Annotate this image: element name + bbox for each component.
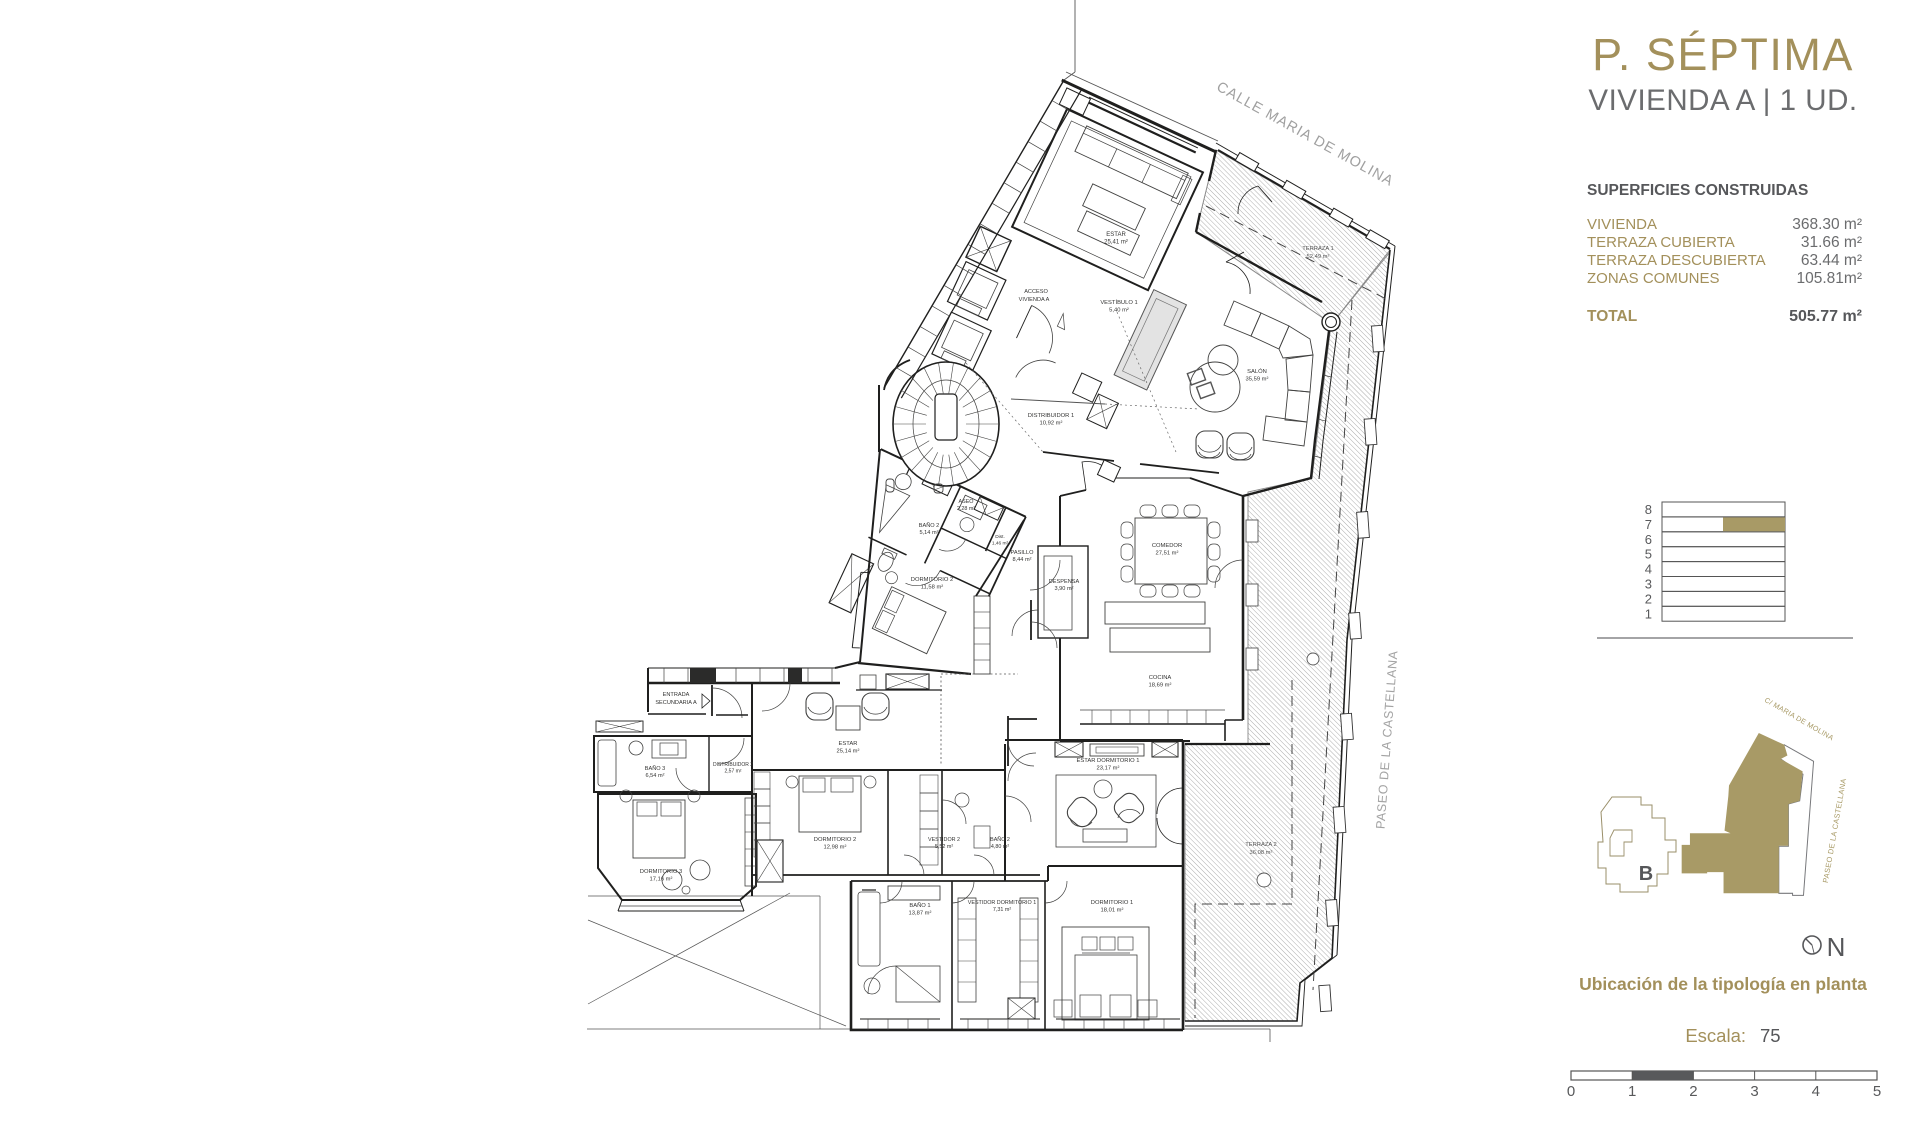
svg-text:Ubicación de la tipología en: Ubicación de la tipología en planta [1579,974,1867,994]
svg-text:36,08 m²: 36,08 m² [1250,850,1273,856]
svg-text:TERRAZA CUBIERTA: TERRAZA CUBIERTA [1587,234,1735,251]
svg-text:75: 75 [1760,1025,1781,1046]
svg-text:VESTÍBULO 1: VESTÍBULO 1 [1100,299,1137,306]
svg-text:12,98 m²: 12,98 m² [824,844,847,850]
svg-text:105.81m²: 105.81m² [1797,270,1862,287]
svg-text:52,49 m²: 52,49 m² [1307,254,1330,260]
svg-text:ACCESO: ACCESO [1024,289,1048,295]
svg-text:35,59 m²: 35,59 m² [1246,376,1269,382]
svg-text:SUPERFICIES CONSTRUIDAS: SUPERFICIES CONSTRUIDAS [1587,182,1808,199]
svg-text:ZONAS COMUNES: ZONAS COMUNES [1587,270,1720,287]
svg-text:25,41 m²: 25,41 m² [1104,240,1128,246]
svg-text:0: 0 [1567,1083,1575,1100]
svg-text:1: 1 [1645,606,1652,621]
svg-text:Escala:: Escala: [1685,1025,1746,1046]
svg-text:5,14 m²: 5,14 m² [920,530,939,536]
svg-text:4,80 m²: 4,80 m² [991,844,1009,850]
svg-text:505.77 m²: 505.77 m² [1789,308,1862,325]
svg-text:6,54 m²: 6,54 m² [646,773,665,779]
svg-text:TERRAZA 2: TERRAZA 2 [1245,842,1277,848]
svg-text:8: 8 [1645,502,1652,517]
svg-text:VESTIDOR DORMITORIO 1: VESTIDOR DORMITORIO 1 [968,900,1037,906]
svg-text:3,90 m²: 3,90 m² [1055,586,1074,592]
svg-text:31.66 m²: 31.66 m² [1801,234,1862,251]
svg-text:4: 4 [1812,1083,1820,1100]
svg-text:PASILLO: PASILLO [1011,550,1035,556]
svg-text:18,69 m²: 18,69 m² [1149,682,1172,688]
svg-text:SALÓN: SALÓN [1247,368,1267,375]
svg-text:8,44 m²: 8,44 m² [1013,557,1032,563]
svg-text:BAÑO 3: BAÑO 3 [645,765,666,772]
svg-text:2,28 m²: 2,28 m² [957,506,975,512]
svg-text:TERRAZA 1: TERRAZA 1 [1302,246,1334,252]
svg-text:DORMITORIO 2: DORMITORIO 2 [814,837,856,843]
svg-text:63.44 m²: 63.44 m² [1801,252,1862,269]
svg-text:3: 3 [1750,1083,1758,1100]
svg-text:ESTAR DORMITORIO 1: ESTAR DORMITORIO 1 [1077,758,1140,764]
svg-text:ENTRADA: ENTRADA [663,692,690,698]
svg-text:10,92 m²: 10,92 m² [1040,420,1063,426]
svg-text:TERRAZA DESCUBIERTA: TERRAZA DESCUBIERTA [1587,252,1766,269]
svg-text:DISTRIBUIDOR 2: DISTRIBUIDOR 2 [713,762,753,768]
svg-text:11,58 m²: 11,58 m² [921,584,944,590]
svg-text:DORMITORIO 3: DORMITORIO 3 [640,869,682,875]
svg-text:DORMITORIO 1: DORMITORIO 1 [1091,900,1133,906]
svg-text:VESTIDOR 2: VESTIDOR 2 [928,837,960,843]
svg-text:27,51 m²: 27,51 m² [1156,550,1179,556]
svg-text:Dist.: Dist. [995,534,1005,540]
svg-text:VIVIENDA A: VIVIENDA A [1019,297,1050,303]
svg-text:368.30 m²: 368.30 m² [1792,216,1862,233]
svg-text:N: N [1827,932,1846,962]
svg-text:17,16 m²: 17,16 m² [650,876,673,882]
svg-text:ESTAR: ESTAR [1106,232,1126,238]
svg-text:5: 5 [1645,547,1652,562]
svg-text:BAÑO 2: BAÑO 2 [990,836,1010,843]
svg-text:3: 3 [1645,577,1652,592]
svg-text:25,14 m²: 25,14 m² [837,748,860,754]
svg-text:COCINA: COCINA [1149,675,1172,681]
svg-text:2: 2 [1645,591,1652,606]
svg-text:DORMITORIO 2: DORMITORIO 2 [911,577,953,583]
svg-text:SECUNDARIA A: SECUNDARIA A [655,700,697,706]
svg-text:P. SÉPTIMA: P. SÉPTIMA [1592,29,1854,80]
svg-text:13,87 m²: 13,87 m² [909,910,932,916]
svg-text:DESPENSA: DESPENSA [1049,579,1080,585]
svg-text:5,52 m²: 5,52 m² [935,844,953,850]
svg-text:BAÑO 2: BAÑO 2 [919,522,940,529]
svg-text:BAÑO 1: BAÑO 1 [909,902,930,909]
svg-text:VIVIENDA A | 1 UD.: VIVIENDA A | 1 UD. [1588,84,1857,117]
svg-text:1,46 m²: 1,46 m² [992,540,1009,546]
svg-text:B: B [1639,863,1653,885]
svg-text:COMEDOR: COMEDOR [1152,543,1182,549]
svg-text:18,01 m²: 18,01 m² [1101,907,1124,913]
svg-text:2: 2 [1689,1083,1697,1100]
svg-text:VIVIENDA: VIVIENDA [1587,216,1657,233]
svg-text:7: 7 [1645,517,1652,532]
svg-text:1: 1 [1628,1083,1636,1100]
svg-text:DISTRIBUIDOR 1: DISTRIBUIDOR 1 [1028,413,1074,419]
svg-text:2,57 m²: 2,57 m² [725,769,742,775]
svg-text:5,40 m²: 5,40 m² [1109,307,1129,313]
svg-text:23,17 m²: 23,17 m² [1097,765,1120,771]
svg-text:4: 4 [1645,562,1652,577]
svg-text:ASEO: ASEO [959,499,974,505]
svg-text:6: 6 [1645,532,1652,547]
svg-text:ESTAR: ESTAR [839,741,858,747]
svg-text:TOTAL: TOTAL [1587,308,1637,325]
svg-text:5: 5 [1873,1083,1881,1100]
svg-text:7,31 m²: 7,31 m² [993,907,1011,913]
